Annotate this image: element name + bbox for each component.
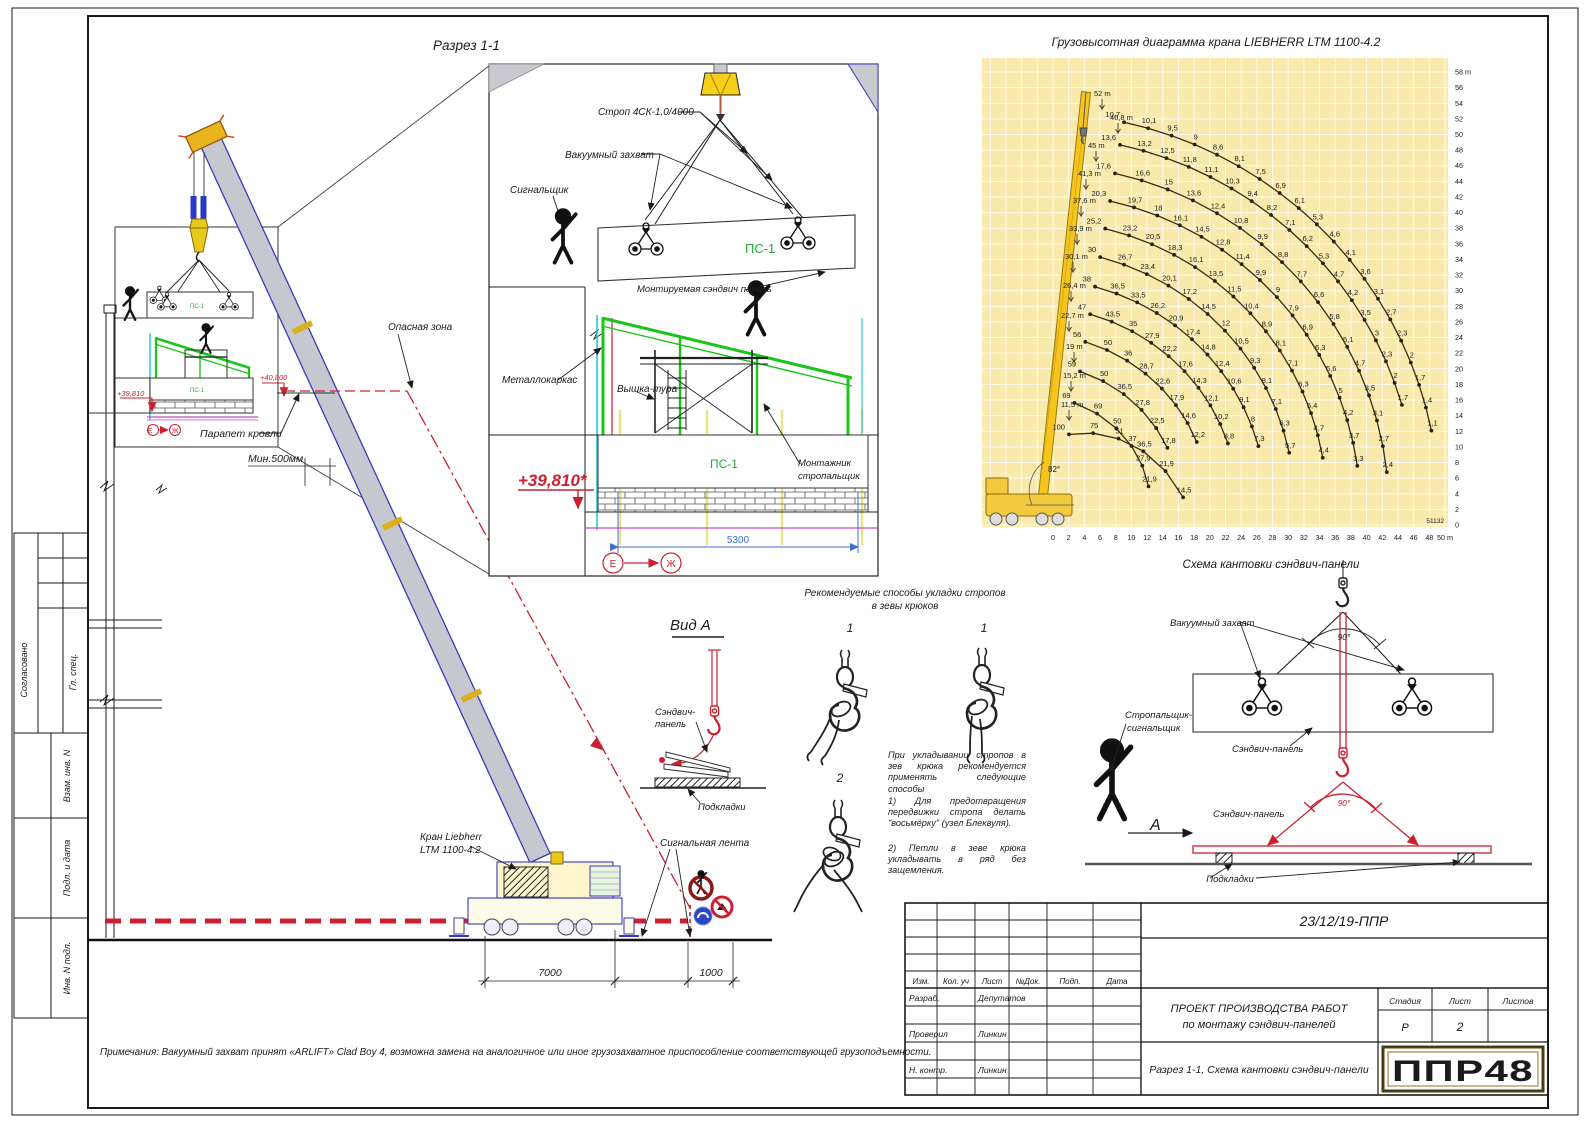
- svg-text:8: 8: [1455, 458, 1459, 467]
- svg-text:19,7: 19,7: [1128, 195, 1143, 204]
- svg-text:3,1: 3,1: [1374, 287, 1384, 296]
- svg-text:26: 26: [1253, 533, 1261, 542]
- svg-text:32: 32: [1300, 533, 1308, 542]
- svg-text:2,3: 2,3: [1382, 349, 1392, 358]
- svg-text:19 m: 19 m: [1066, 342, 1083, 351]
- svg-text:7,1: 7,1: [1272, 397, 1282, 406]
- detail-sling-label: Строп 4СК-1,0/4000: [598, 107, 694, 118]
- svg-text:22,6: 22,6: [1156, 377, 1171, 386]
- svg-text:12: 12: [1455, 427, 1463, 436]
- svg-text:26,7: 26,7: [1118, 253, 1133, 262]
- svg-text:6,3: 6,3: [1298, 380, 1308, 389]
- svg-text:9: 9: [1276, 285, 1280, 294]
- methods-paragraph-1: При укладывании стропов в зев крюка реко…: [888, 750, 1026, 795]
- svg-text:7,1: 7,1: [1285, 218, 1295, 227]
- mandatory-sign-icon: [694, 907, 712, 925]
- svg-text:17,4: 17,4: [1186, 327, 1201, 336]
- tb-h-podp: Подп.: [1059, 977, 1080, 986]
- svg-text:5,1: 5,1: [1343, 335, 1353, 344]
- methods-paragraph-2: 1) Для предотвращения передвижки стропа …: [888, 796, 1026, 830]
- svg-text:14: 14: [1455, 411, 1463, 420]
- svg-text:1,7: 1,7: [1398, 393, 1408, 402]
- tb-nk: Н. контр.: [909, 1065, 947, 1075]
- svg-text:46,8 m: 46,8 m: [1110, 113, 1133, 122]
- svg-text:50: 50: [1104, 338, 1112, 347]
- svg-text:41,3 m: 41,3 m: [1078, 169, 1101, 178]
- kantovka-angle-top: 90°: [1338, 632, 1351, 642]
- svg-text:10,2: 10,2: [1214, 412, 1229, 421]
- crane-label-2: LTM 1100-4.2: [420, 845, 481, 856]
- svg-text:6,2: 6,2: [1302, 234, 1312, 243]
- svg-text:5,8: 5,8: [1329, 312, 1339, 321]
- svg-text:9,3: 9,3: [1250, 356, 1260, 365]
- side-label-chief: Гл. спец.: [68, 654, 78, 691]
- svg-text:9,9: 9,9: [1258, 232, 1268, 241]
- svg-text:48: 48: [1455, 146, 1463, 155]
- svg-text:22: 22: [1455, 349, 1463, 358]
- svg-text:7,1: 7,1: [1288, 359, 1298, 368]
- methods-title-1: Рекомендуемые способы укладки стропов: [804, 587, 1005, 599]
- svg-text:16,6: 16,6: [1135, 168, 1150, 177]
- svg-text:26: 26: [1455, 317, 1463, 326]
- svg-text:11,4: 11,4: [1236, 252, 1250, 261]
- svg-text:10,1: 10,1: [1142, 116, 1157, 125]
- tb-project-2: по монтажу сэндвич-панелей: [1182, 1019, 1335, 1031]
- svg-text:6: 6: [1098, 533, 1102, 542]
- svg-text:8,1: 8,1: [1235, 154, 1245, 163]
- chart-angle: 82°: [1048, 465, 1060, 474]
- ps1-mini-wall: ПС-1: [190, 388, 205, 394]
- svg-text:12,5: 12,5: [1160, 146, 1175, 155]
- svg-text:8,8: 8,8: [1278, 250, 1288, 259]
- svg-text:13,2: 13,2: [1137, 139, 1152, 148]
- svg-text:13,5: 13,5: [1209, 269, 1224, 278]
- svg-text:43,5: 43,5: [1105, 310, 1120, 319]
- svg-text:34: 34: [1316, 533, 1324, 542]
- svg-text:8,1: 8,1: [1262, 376, 1272, 385]
- svg-text:4,4: 4,4: [1319, 446, 1329, 455]
- detail-frame-label: Металлокаркас: [502, 375, 577, 386]
- svg-text:38: 38: [1347, 533, 1355, 542]
- svg-text:44: 44: [1455, 177, 1463, 186]
- svg-text:4,6: 4,6: [1330, 230, 1340, 239]
- svg-text:28,7: 28,7: [1139, 362, 1154, 371]
- svg-text:8,1: 8,1: [1276, 338, 1286, 347]
- svg-text:46: 46: [1410, 533, 1418, 542]
- svg-text:42: 42: [1455, 192, 1463, 201]
- svg-text:2,4: 2,4: [1383, 460, 1393, 469]
- svg-text:8,6: 8,6: [1213, 143, 1223, 152]
- svg-text:8,2: 8,2: [1267, 203, 1277, 212]
- drawing-sheet: Согласовано Гл. спец. Взам. инв. N Подл.…: [0, 0, 1588, 1123]
- svg-text:47: 47: [1078, 302, 1086, 311]
- svg-text:5,6: 5,6: [1326, 364, 1336, 373]
- elev-39810-mini: +39,810: [117, 389, 145, 398]
- svg-text:75: 75: [1090, 421, 1098, 430]
- svg-text:46: 46: [1455, 161, 1463, 170]
- svg-text:8,8: 8,8: [1224, 431, 1234, 440]
- svg-text:16,1: 16,1: [1174, 213, 1189, 222]
- svg-text:30,1 m: 30,1 m: [1065, 252, 1088, 261]
- svg-text:36,5: 36,5: [1110, 282, 1125, 291]
- vida-panel-2: панель: [655, 719, 686, 730]
- svg-text:6: 6: [1455, 474, 1459, 483]
- svg-text:18: 18: [1190, 533, 1198, 542]
- crane-label-1: Кран Liebherr: [420, 832, 483, 843]
- svg-text:1,4: 1,4: [1422, 396, 1432, 405]
- svg-text:14,5: 14,5: [1201, 302, 1216, 311]
- detail-worker-2: стропальщик: [798, 471, 860, 482]
- tb-razrab: Разраб.: [909, 993, 940, 1003]
- chart-title: Грузовысотная диаграмма крана LIEBHERR L…: [1052, 35, 1381, 49]
- svg-text:14,3: 14,3: [1192, 376, 1207, 385]
- svg-text:3,5: 3,5: [1360, 308, 1370, 317]
- kantovka-panel-top: Сэндвич-панель: [1232, 744, 1303, 755]
- svg-text:0: 0: [1455, 521, 1459, 530]
- svg-text:11,8: 11,8: [1183, 155, 1197, 164]
- svg-text:16,1: 16,1: [1189, 255, 1204, 264]
- svg-text:40: 40: [1363, 533, 1371, 542]
- svg-text:36: 36: [1331, 533, 1339, 542]
- svg-text:50: 50: [1113, 416, 1121, 425]
- kantovka-title: Схема кантовки сэндвич-панели: [1183, 559, 1361, 571]
- svg-text:2: 2: [1067, 533, 1071, 542]
- svg-text:21,9: 21,9: [1142, 474, 1157, 483]
- svg-text:3,5: 3,5: [1365, 383, 1375, 392]
- svg-text:22: 22: [1221, 533, 1229, 542]
- svg-text:30: 30: [1455, 286, 1463, 295]
- svg-text:2: 2: [1455, 505, 1459, 514]
- svg-text:50 m: 50 m: [1437, 533, 1453, 542]
- svg-text:10,3: 10,3: [1225, 176, 1240, 185]
- side-label-podl: Подл. и дата: [62, 840, 72, 896]
- min-gap-label: Мин.500мм: [248, 453, 303, 465]
- svg-text:37: 37: [1128, 434, 1136, 443]
- svg-text:6,3: 6,3: [1279, 419, 1289, 428]
- svg-text:3,7: 3,7: [1349, 431, 1359, 440]
- tb-h-izm: Изм.: [912, 977, 929, 986]
- svg-text:69: 69: [1094, 402, 1102, 411]
- tb-h-kol: Кол. уч: [943, 977, 969, 986]
- svg-text:7,9: 7,9: [1288, 303, 1298, 312]
- svg-text:4,7: 4,7: [1334, 269, 1344, 278]
- svg-text:33,9 m: 33,9 m: [1069, 224, 1092, 233]
- detail-axis-zh: Ж: [666, 559, 676, 570]
- svg-text:8: 8: [1114, 533, 1118, 542]
- tb-h-dok: №Док.: [1016, 977, 1041, 986]
- svg-text:28: 28: [1455, 302, 1463, 311]
- methods-paragraph-3: 2) Петли в зеве крюка укладывать в ряд б…: [888, 843, 1026, 877]
- svg-text:12: 12: [1222, 319, 1230, 328]
- svg-text:36,5: 36,5: [1137, 439, 1152, 448]
- svg-text:3: 3: [1375, 328, 1379, 337]
- svg-text:9,1: 9,1: [1239, 395, 1249, 404]
- svg-text:11,5 m: 11,5 m: [1061, 400, 1083, 409]
- tb-h-list: Лист: [981, 977, 1003, 986]
- methods-n3: 2: [836, 771, 844, 785]
- detail-dim-5300: 5300: [727, 535, 750, 546]
- tb-listov: Листов: [1502, 996, 1535, 1006]
- svg-text:6,9: 6,9: [1275, 181, 1285, 190]
- parapet-label: Парапет кровли: [200, 428, 282, 440]
- svg-text:26,2: 26,2: [1150, 301, 1165, 310]
- tb-razrab-name: Депутатов: [977, 993, 1026, 1003]
- kantovka-panel-bottom: Сэндвич-панель: [1213, 809, 1284, 820]
- kantovka-pads: Подкладки: [1206, 874, 1254, 885]
- signal-tape-label: Сигнальная лента: [660, 838, 750, 849]
- svg-text:3,1: 3,1: [1373, 409, 1383, 418]
- kantovka-vacuum: Вакуумный захват: [1170, 618, 1255, 629]
- tb-prov: Проверил: [909, 1029, 948, 1039]
- svg-text:5,3: 5,3: [1313, 212, 1323, 221]
- svg-text:20,5: 20,5: [1146, 232, 1161, 241]
- no-pedestrians-sign-icon: [690, 871, 712, 899]
- svg-text:14,6: 14,6: [1181, 411, 1196, 420]
- detail-signalman-label: Сигнальщик: [510, 185, 570, 196]
- svg-text:10,8: 10,8: [1234, 216, 1249, 225]
- side-label-vzam: Взам. инв. N: [62, 749, 72, 802]
- svg-text:4,7: 4,7: [1314, 423, 1324, 432]
- svg-text:42: 42: [1378, 533, 1386, 542]
- svg-text:12,8: 12,8: [1216, 238, 1231, 247]
- kantovka-rigger-1: Стропальщик-: [1125, 710, 1192, 721]
- side-label-approved: Согласовано: [19, 643, 29, 698]
- svg-text:9,9: 9,9: [1256, 268, 1266, 277]
- axis-zh-mini: Ж: [172, 428, 179, 435]
- tb-list-value: 2: [1456, 1020, 1464, 1034]
- ps1-mini-panel: ПС-1: [190, 304, 205, 310]
- svg-text:27,8: 27,8: [1135, 398, 1150, 407]
- svg-text:4: 4: [1082, 533, 1086, 542]
- svg-text:4: 4: [1455, 489, 1459, 498]
- svg-text:30: 30: [1284, 533, 1292, 542]
- svg-text:56: 56: [1073, 330, 1081, 339]
- svg-text:6,9: 6,9: [1302, 323, 1312, 332]
- svg-text:3,6: 3,6: [1360, 267, 1370, 276]
- svg-text:20,1: 20,1: [1162, 274, 1177, 283]
- svg-text:24: 24: [1455, 333, 1463, 342]
- svg-text:35: 35: [1129, 319, 1137, 328]
- kantovka-angle-bottom: 90°: [1338, 798, 1351, 808]
- svg-text:54: 54: [1455, 99, 1463, 108]
- svg-text:6,1: 6,1: [1294, 196, 1304, 205]
- tb-list: Лист: [1448, 996, 1471, 1006]
- svg-text:48: 48: [1425, 533, 1433, 542]
- svg-text:7,3: 7,3: [1254, 434, 1264, 443]
- tb-stadia-value: Р: [1401, 1022, 1409, 1034]
- elev-40800-mini: +40,800: [260, 373, 288, 382]
- sheet-note: Примечания: Вакуумный захват принят «ARL…: [100, 1047, 931, 1058]
- svg-text:36: 36: [1455, 239, 1463, 248]
- svg-text:14,5: 14,5: [1177, 485, 1192, 494]
- svg-text:1,1: 1,1: [1427, 419, 1437, 428]
- svg-text:0: 0: [1051, 533, 1055, 542]
- svg-text:12,4: 12,4: [1211, 201, 1226, 210]
- svg-text:23,2: 23,2: [1123, 223, 1138, 232]
- svg-text:4,2: 4,2: [1343, 408, 1353, 417]
- svg-text:4,7: 4,7: [1355, 359, 1365, 368]
- detail-ps1-wall: ПС-1: [710, 457, 738, 471]
- svg-text:20,9: 20,9: [1169, 313, 1184, 322]
- vida-title: Вид А: [670, 617, 711, 634]
- svg-text:36: 36: [1124, 349, 1132, 358]
- svg-text:52: 52: [1455, 114, 1463, 123]
- detail-axis-e: Е: [610, 559, 617, 570]
- svg-text:7,7: 7,7: [1297, 269, 1307, 278]
- svg-text:33,5: 33,5: [1131, 290, 1146, 299]
- danger-zone-label: Опасная зона: [388, 322, 453, 333]
- svg-text:3,3: 3,3: [1353, 454, 1363, 463]
- svg-text:12: 12: [1143, 533, 1151, 542]
- svg-text:17,6: 17,6: [1178, 359, 1193, 368]
- svg-text:14,8: 14,8: [1201, 343, 1216, 352]
- vida-panel-1: Сэндвич-: [655, 707, 695, 718]
- svg-text:45 m: 45 m: [1088, 141, 1105, 150]
- tb-h-data: Дата: [1105, 977, 1128, 986]
- svg-text:12,2: 12,2: [1190, 430, 1205, 439]
- svg-text:18: 18: [1154, 203, 1162, 212]
- svg-text:16: 16: [1174, 533, 1182, 542]
- svg-text:22,2: 22,2: [1162, 344, 1177, 353]
- svg-text:15: 15: [1165, 177, 1173, 186]
- svg-text:10,6: 10,6: [1227, 377, 1242, 386]
- svg-text:12,4: 12,4: [1215, 359, 1230, 368]
- svg-text:15,2 m: 15,2 m: [1063, 371, 1086, 380]
- svg-text:51: 51: [1115, 427, 1123, 436]
- side-label-inv: Инв. N подл.: [62, 942, 72, 995]
- svg-text:6,6: 6,6: [1314, 290, 1324, 299]
- svg-text:52 m: 52 m: [1094, 89, 1111, 98]
- vida-pads: Подкладки: [698, 802, 746, 813]
- tb-subtitle: Разрез 1-1, Схема кантовки сэндвич-панел…: [1149, 1064, 1369, 1076]
- svg-text:58 m: 58 m: [1455, 68, 1471, 77]
- svg-text:11,1: 11,1: [1204, 165, 1218, 174]
- svg-text:10: 10: [1455, 442, 1463, 451]
- methods-n2: 1: [981, 621, 988, 635]
- svg-text:8,9: 8,9: [1262, 319, 1272, 328]
- methods-n1: 1: [847, 621, 854, 635]
- no-crane-zone-sign-icon: [712, 897, 732, 917]
- svg-text:100: 100: [1052, 422, 1065, 431]
- svg-text:30: 30: [1088, 245, 1096, 254]
- detail-mounted-label: Монтируемая сэндвич панель: [637, 284, 772, 295]
- svg-text:9: 9: [1194, 133, 1198, 142]
- svg-text:5,4: 5,4: [1307, 401, 1317, 410]
- svg-text:5,3: 5,3: [1319, 251, 1329, 260]
- svg-text:50: 50: [1100, 369, 1108, 378]
- svg-text:4,1: 4,1: [1346, 248, 1356, 257]
- svg-text:14: 14: [1159, 533, 1167, 542]
- svg-text:13,6: 13,6: [1187, 188, 1202, 197]
- methods-title-2: в зевы крюков: [872, 601, 939, 612]
- dim-7000: 7000: [538, 967, 562, 979]
- svg-text:44: 44: [1394, 533, 1402, 542]
- svg-text:2: 2: [1410, 351, 1414, 360]
- svg-text:9,4: 9,4: [1247, 189, 1257, 198]
- svg-text:10,5: 10,5: [1234, 337, 1249, 346]
- svg-text:37,6 m: 37,6 m: [1073, 196, 1096, 205]
- crane-truck: [449, 852, 639, 936]
- svg-text:36,5: 36,5: [1117, 382, 1132, 391]
- tb-nk-name: Линкин: [977, 1065, 1007, 1075]
- detail-vacuum-label: Вакуумный захват: [565, 150, 654, 161]
- svg-text:17,9: 17,9: [1170, 393, 1185, 402]
- svg-text:16: 16: [1455, 396, 1463, 405]
- detail-worker-1: Монтажник: [798, 458, 852, 469]
- tb-project-1: ПРОЕКТ ПРОИЗВОДСТВА РАБОТ: [1171, 1003, 1349, 1015]
- svg-text:32: 32: [1455, 271, 1463, 280]
- drawing-canvas: Согласовано Гл. спец. Взам. инв. N Подл.…: [0, 0, 1588, 1123]
- svg-text:4,2: 4,2: [1348, 288, 1358, 297]
- hook-block: [190, 152, 208, 262]
- svg-text:34: 34: [1455, 255, 1463, 264]
- svg-text:1,7: 1,7: [1415, 373, 1425, 382]
- dim-1000: 1000: [699, 967, 723, 979]
- svg-text:2,7: 2,7: [1386, 307, 1396, 316]
- detail-elevation: +39,810*: [518, 471, 588, 490]
- svg-text:40: 40: [1455, 208, 1463, 217]
- svg-text:27,9: 27,9: [1145, 331, 1160, 340]
- svg-text:23,4: 23,4: [1140, 262, 1155, 271]
- kantovka-view-a: А: [1149, 817, 1161, 834]
- svg-text:2,7: 2,7: [1379, 434, 1389, 443]
- svg-text:20: 20: [1206, 533, 1214, 542]
- svg-text:5: 5: [1339, 386, 1343, 395]
- svg-text:22,5: 22,5: [1150, 416, 1165, 425]
- svg-text:22,7 m: 22,7 m: [1061, 311, 1084, 320]
- svg-text:7,5: 7,5: [1255, 167, 1265, 176]
- svg-text:12,1: 12,1: [1204, 393, 1219, 402]
- svg-text:10,4: 10,4: [1244, 301, 1259, 310]
- tb-stadia: Стадия: [1389, 996, 1421, 1006]
- detail-ps1-panel: ПС-1: [745, 241, 775, 256]
- svg-text:26,4 m: 26,4 m: [1063, 281, 1086, 290]
- svg-text:10: 10: [1127, 533, 1135, 542]
- tb-doc-number: 23/12/19-ППР: [1299, 913, 1389, 929]
- svg-text:2: 2: [1394, 371, 1398, 380]
- svg-text:20: 20: [1455, 364, 1463, 373]
- svg-text:69: 69: [1062, 391, 1070, 400]
- svg-text:17,8: 17,8: [1161, 436, 1176, 445]
- section-title: Разрез 1-1: [433, 38, 500, 53]
- svg-text:8: 8: [1251, 414, 1255, 423]
- svg-text:50: 50: [1455, 130, 1463, 139]
- kantovka-rigger-2: сигнальщик: [1127, 723, 1181, 734]
- svg-text:21,9: 21,9: [1159, 459, 1174, 468]
- axis-e-mini: Е: [148, 428, 153, 435]
- svg-text:38: 38: [1455, 224, 1463, 233]
- svg-text:28: 28: [1269, 533, 1277, 542]
- svg-text:17,2: 17,2: [1182, 287, 1197, 296]
- svg-text:18: 18: [1455, 380, 1463, 389]
- tb-logo: ППР48: [1392, 1055, 1534, 1088]
- svg-text:9,5: 9,5: [1167, 124, 1177, 133]
- svg-text:2,3: 2,3: [1397, 329, 1407, 338]
- tb-prov-name: Линкин: [977, 1029, 1007, 1039]
- svg-text:18,3: 18,3: [1168, 243, 1183, 252]
- svg-text:24: 24: [1237, 533, 1245, 542]
- detail-tower-label: Вышка-тура: [617, 384, 678, 395]
- svg-text:11,5: 11,5: [1227, 284, 1241, 293]
- chart-code: 51132: [1426, 518, 1444, 525]
- svg-text:14,5: 14,5: [1195, 225, 1210, 234]
- detail-view: [489, 64, 878, 576]
- svg-text:56: 56: [1455, 83, 1463, 92]
- svg-text:5,7: 5,7: [1285, 441, 1295, 450]
- svg-text:6,3: 6,3: [1315, 343, 1325, 352]
